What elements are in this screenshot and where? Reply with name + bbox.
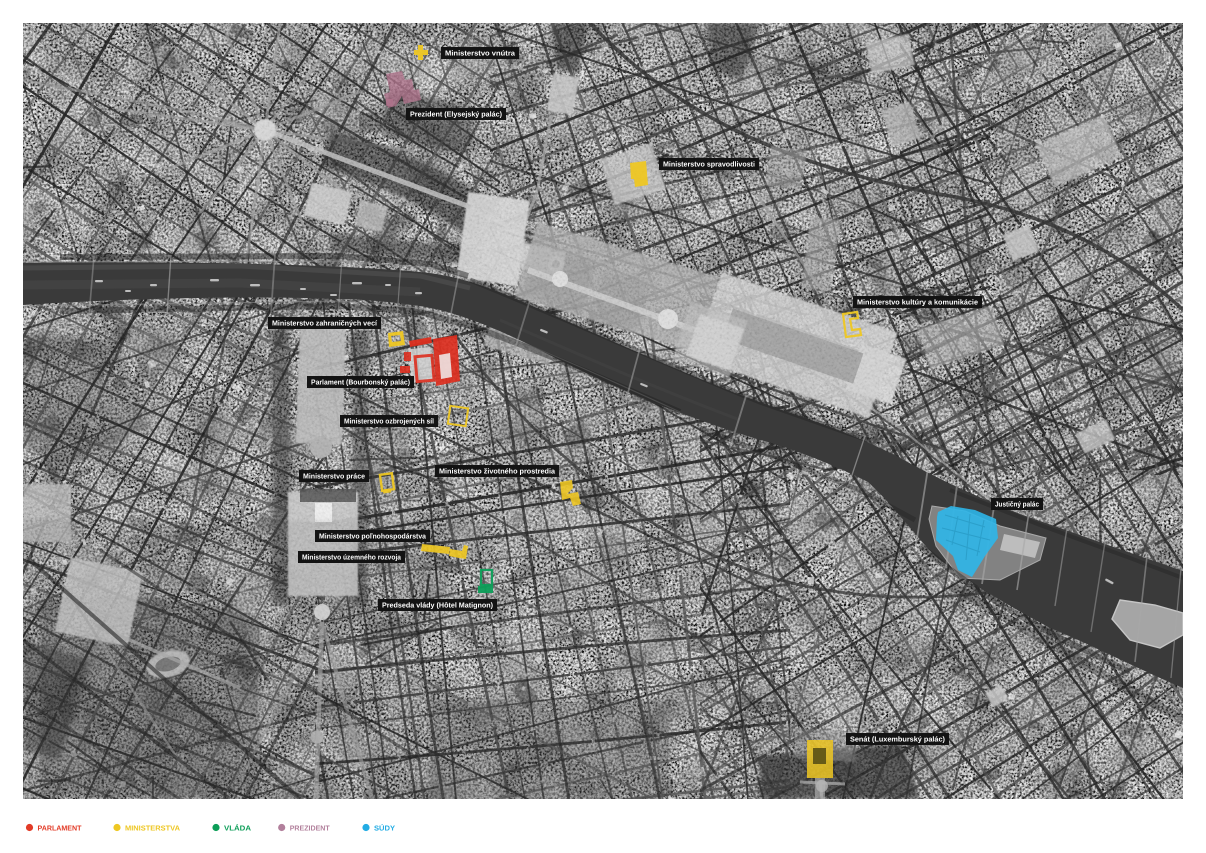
svg-text:Parlament (Bourbonský palác): Parlament (Bourbonský palác) xyxy=(311,378,411,387)
svg-text:Ministerstvo kultúry a komunik: Ministerstvo kultúry a komunikácie xyxy=(857,298,978,307)
svg-text:PARLAMENT: PARLAMENT xyxy=(38,824,83,833)
svg-text:VLÁDA: VLÁDA xyxy=(224,824,251,833)
svg-text:Ministerstvo územného rozvoja: Ministerstvo územného rozvoja xyxy=(302,553,402,562)
svg-text:Ministerstvo vnútra: Ministerstvo vnútra xyxy=(445,49,516,58)
svg-text:Prezident (Elysejský palác): Prezident (Elysejský palác) xyxy=(410,110,503,119)
svg-text:Ministerstvo práce: Ministerstvo práce xyxy=(303,472,365,481)
svg-text:Predseda vlády (Hôtel Matignon: Predseda vlády (Hôtel Matignon) xyxy=(382,601,494,610)
svg-text:Ministerstvo spravodlivosti: Ministerstvo spravodlivosti xyxy=(663,160,755,169)
svg-text:Ministerstvo ozbrojených síl: Ministerstvo ozbrojených síl xyxy=(344,417,434,426)
svg-text:MINISTERSTVA: MINISTERSTVA xyxy=(125,824,180,833)
svg-text:Justičný palác: Justičný palác xyxy=(995,500,1039,509)
svg-text:Ministerstvo životného prostre: Ministerstvo životného prostredia xyxy=(439,467,556,476)
svg-text:Senát (Luxemburský palác): Senát (Luxemburský palác) xyxy=(850,735,946,744)
svg-text:PREZIDENT: PREZIDENT xyxy=(290,824,331,833)
svg-text:Ministerstvo poľnohospodárstva: Ministerstvo poľnohospodárstva xyxy=(319,532,427,541)
svg-text:SÚDY: SÚDY xyxy=(374,824,395,833)
svg-text:Ministerstvo zahraničných vecí: Ministerstvo zahraničných vecí xyxy=(272,319,378,328)
